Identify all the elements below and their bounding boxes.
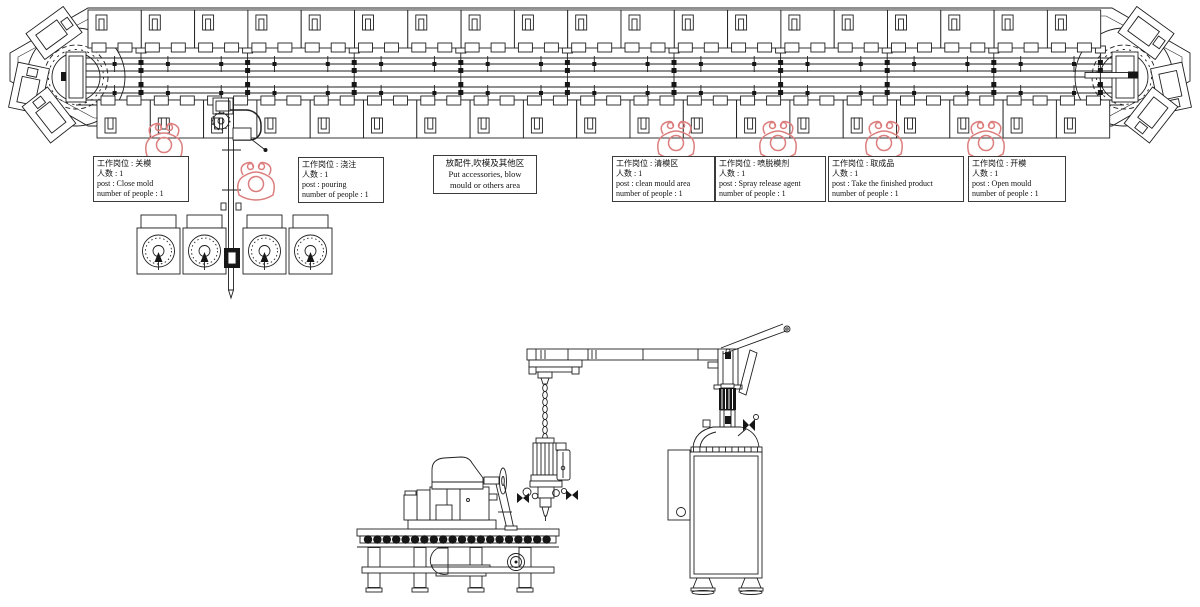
foaming-machine bbox=[404, 457, 517, 530]
roller bbox=[477, 535, 485, 543]
mold-station bbox=[790, 96, 843, 138]
roller bbox=[392, 535, 400, 543]
label-line: 人数 : 1 bbox=[97, 169, 185, 179]
workstation-label-open-mould: 工作岗位 : 开模 人数 : 1 post : Open mould numbe… bbox=[968, 156, 1066, 202]
mold-station bbox=[417, 96, 470, 138]
roller bbox=[373, 535, 381, 543]
label-line: 工作岗位 : 浇注 bbox=[302, 160, 380, 170]
tank-unit bbox=[243, 215, 286, 274]
workstation-label-clean-mould: 工作岗位 : 清模区 人数 : 1 post : clean mould are… bbox=[612, 156, 715, 202]
chain-link bbox=[543, 384, 548, 391]
mold-station bbox=[781, 10, 834, 52]
label-line: 工作岗位 : 开模 bbox=[972, 159, 1062, 169]
label-line: post : Spray release agent bbox=[719, 179, 822, 189]
label-line: post : pouring bbox=[302, 180, 380, 190]
label-line: number of people : 1 bbox=[302, 190, 380, 200]
mold-station bbox=[470, 96, 523, 138]
roller bbox=[495, 535, 503, 543]
worker-icon bbox=[238, 163, 274, 201]
roller bbox=[448, 535, 456, 543]
label-line: number of people : 1 bbox=[972, 189, 1062, 199]
label-line: Put accessories, blow bbox=[437, 169, 533, 180]
chain-link bbox=[543, 419, 548, 426]
mold-station bbox=[728, 10, 781, 52]
mixing-head-hoist bbox=[517, 384, 578, 521]
label-line: 人数 : 1 bbox=[832, 169, 960, 179]
roller bbox=[364, 535, 372, 543]
roller bbox=[383, 535, 391, 543]
mold-station bbox=[461, 10, 514, 52]
mold-station bbox=[97, 96, 150, 138]
label-line: 工作岗位 : 关模 bbox=[97, 159, 185, 169]
roller bbox=[533, 535, 541, 543]
roller bbox=[542, 535, 550, 543]
roller bbox=[430, 535, 438, 543]
mold-station bbox=[257, 96, 310, 138]
mold-station bbox=[310, 96, 363, 138]
label-line: post : Take the finished product bbox=[832, 179, 960, 189]
mold-station bbox=[994, 10, 1047, 52]
line-drawing bbox=[0, 0, 1200, 607]
mold-station bbox=[1047, 10, 1100, 52]
label-line: 工作岗位 : 喷脱模剂 bbox=[719, 159, 822, 169]
label-line: number of people : 1 bbox=[616, 189, 711, 199]
mold-station bbox=[834, 10, 887, 52]
mold-station bbox=[1056, 96, 1109, 138]
roller-conveyor-table bbox=[357, 529, 559, 592]
tank-unit bbox=[289, 215, 332, 274]
mold-station bbox=[897, 96, 950, 138]
mold-station bbox=[1003, 96, 1056, 138]
roller bbox=[420, 535, 428, 543]
mold-station bbox=[150, 96, 203, 138]
roller bbox=[514, 535, 522, 543]
mold-station bbox=[301, 10, 354, 52]
roller bbox=[439, 535, 447, 543]
label-line: 放配件,吹模及其他区 bbox=[437, 158, 533, 169]
label-line: number of people : 1 bbox=[719, 189, 822, 199]
roller bbox=[505, 535, 513, 543]
mold-station bbox=[88, 10, 141, 52]
mold-station bbox=[577, 96, 630, 138]
label-line: mould or others area bbox=[437, 180, 533, 191]
mold-station bbox=[364, 96, 417, 138]
chain-link bbox=[543, 391, 548, 398]
mold-station bbox=[523, 96, 576, 138]
chain-link bbox=[543, 412, 548, 419]
workstation-label-spray-release: 工作岗位 : 喷脱模剂 人数 : 1 post : Spray release … bbox=[715, 156, 826, 202]
mold-station bbox=[950, 96, 1003, 138]
label-line: number of people : 1 bbox=[97, 189, 185, 199]
label-line: 人数 : 1 bbox=[616, 169, 711, 179]
roller bbox=[486, 535, 494, 543]
mold-station bbox=[355, 10, 408, 52]
mold-station bbox=[621, 10, 674, 52]
mold-station bbox=[408, 10, 461, 52]
label-line: post : Open mould bbox=[972, 179, 1062, 189]
label-line: 工作岗位 : 清模区 bbox=[616, 159, 711, 169]
mold-station bbox=[248, 10, 301, 52]
workstation-label-close-mold: 工作岗位 : 关模 人数 : 1 post : Close mold numbe… bbox=[93, 156, 189, 202]
jib-crane bbox=[527, 349, 718, 384]
mold-station bbox=[888, 10, 941, 52]
workstation-label-pouring: 工作岗位 : 浇注 人数 : 1 post : pouring number o… bbox=[298, 157, 384, 203]
hoist-chain bbox=[543, 384, 548, 440]
chain-link bbox=[543, 426, 548, 433]
roller bbox=[458, 535, 466, 543]
label-line: 人数 : 1 bbox=[972, 169, 1062, 179]
tank-unit bbox=[137, 215, 180, 274]
label-line: post : Close mold bbox=[97, 179, 185, 189]
chain-link bbox=[543, 405, 548, 412]
mold-station bbox=[141, 10, 194, 52]
mold-station bbox=[195, 10, 248, 52]
mold-station bbox=[674, 10, 727, 52]
label-line: number of people : 1 bbox=[832, 189, 960, 199]
left-drive-housing bbox=[61, 52, 86, 102]
area-note-box: 放配件,吹模及其他区 Put accessories, blow mould o… bbox=[433, 155, 537, 194]
mold-station bbox=[941, 10, 994, 52]
roller bbox=[411, 535, 419, 543]
right-drive-housing bbox=[1085, 52, 1138, 102]
tank-unit bbox=[183, 215, 226, 274]
mold-station bbox=[568, 10, 621, 52]
chain-link bbox=[543, 398, 548, 405]
mixing-tank-station bbox=[668, 324, 790, 595]
top-station-row bbox=[88, 10, 1101, 52]
roller bbox=[401, 535, 409, 543]
roller bbox=[467, 535, 475, 543]
production-line-layout-drawing: 工作岗位 : 关模 人数 : 1 post : Close mold numbe… bbox=[0, 0, 1200, 607]
label-line: 工作岗位 : 取成品 bbox=[832, 159, 960, 169]
roller bbox=[524, 535, 532, 543]
mold-station bbox=[514, 10, 567, 52]
workstation-label-take-product: 工作岗位 : 取成品 人数 : 1 post : Take the finish… bbox=[828, 156, 964, 202]
carousel-conveyor bbox=[9, 7, 1192, 143]
label-line: post : clean mould area bbox=[616, 179, 711, 189]
label-line: 人数 : 1 bbox=[719, 169, 822, 179]
label-line: 人数 : 1 bbox=[302, 170, 380, 180]
mold-station bbox=[683, 96, 736, 138]
